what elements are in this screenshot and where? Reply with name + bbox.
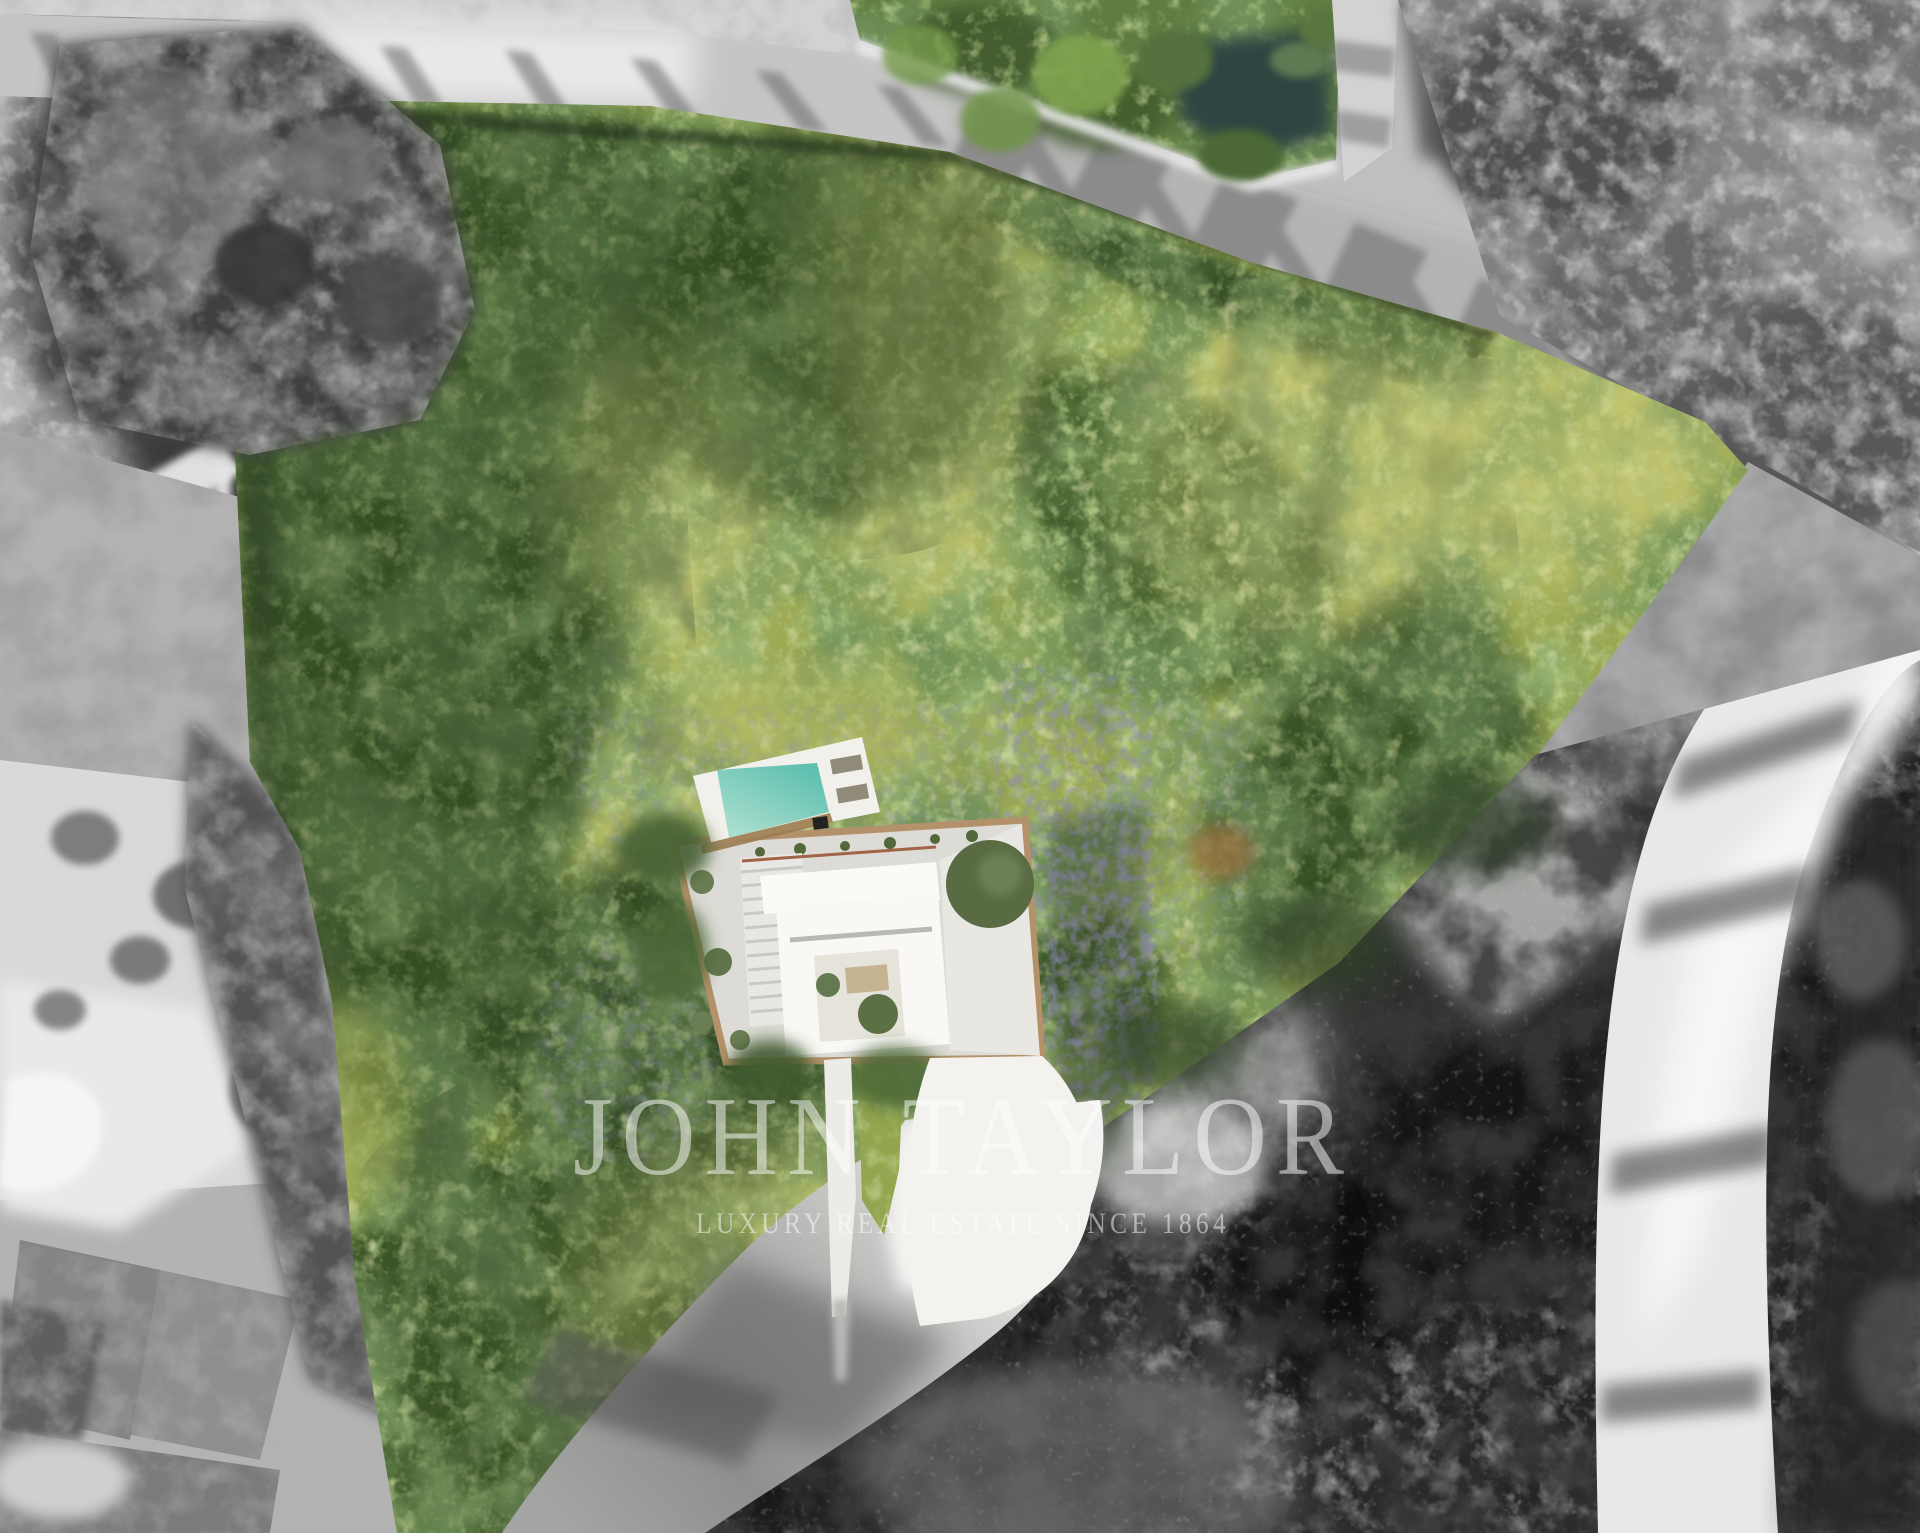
svg-text:JOHN TAYLOR: JOHN TAYLOR [573, 1075, 1353, 1199]
svg-text:LUXURY REAL ESTATE SINCE 1864: LUXURY REAL ESTATE SINCE 1864 [696, 1207, 1230, 1240]
